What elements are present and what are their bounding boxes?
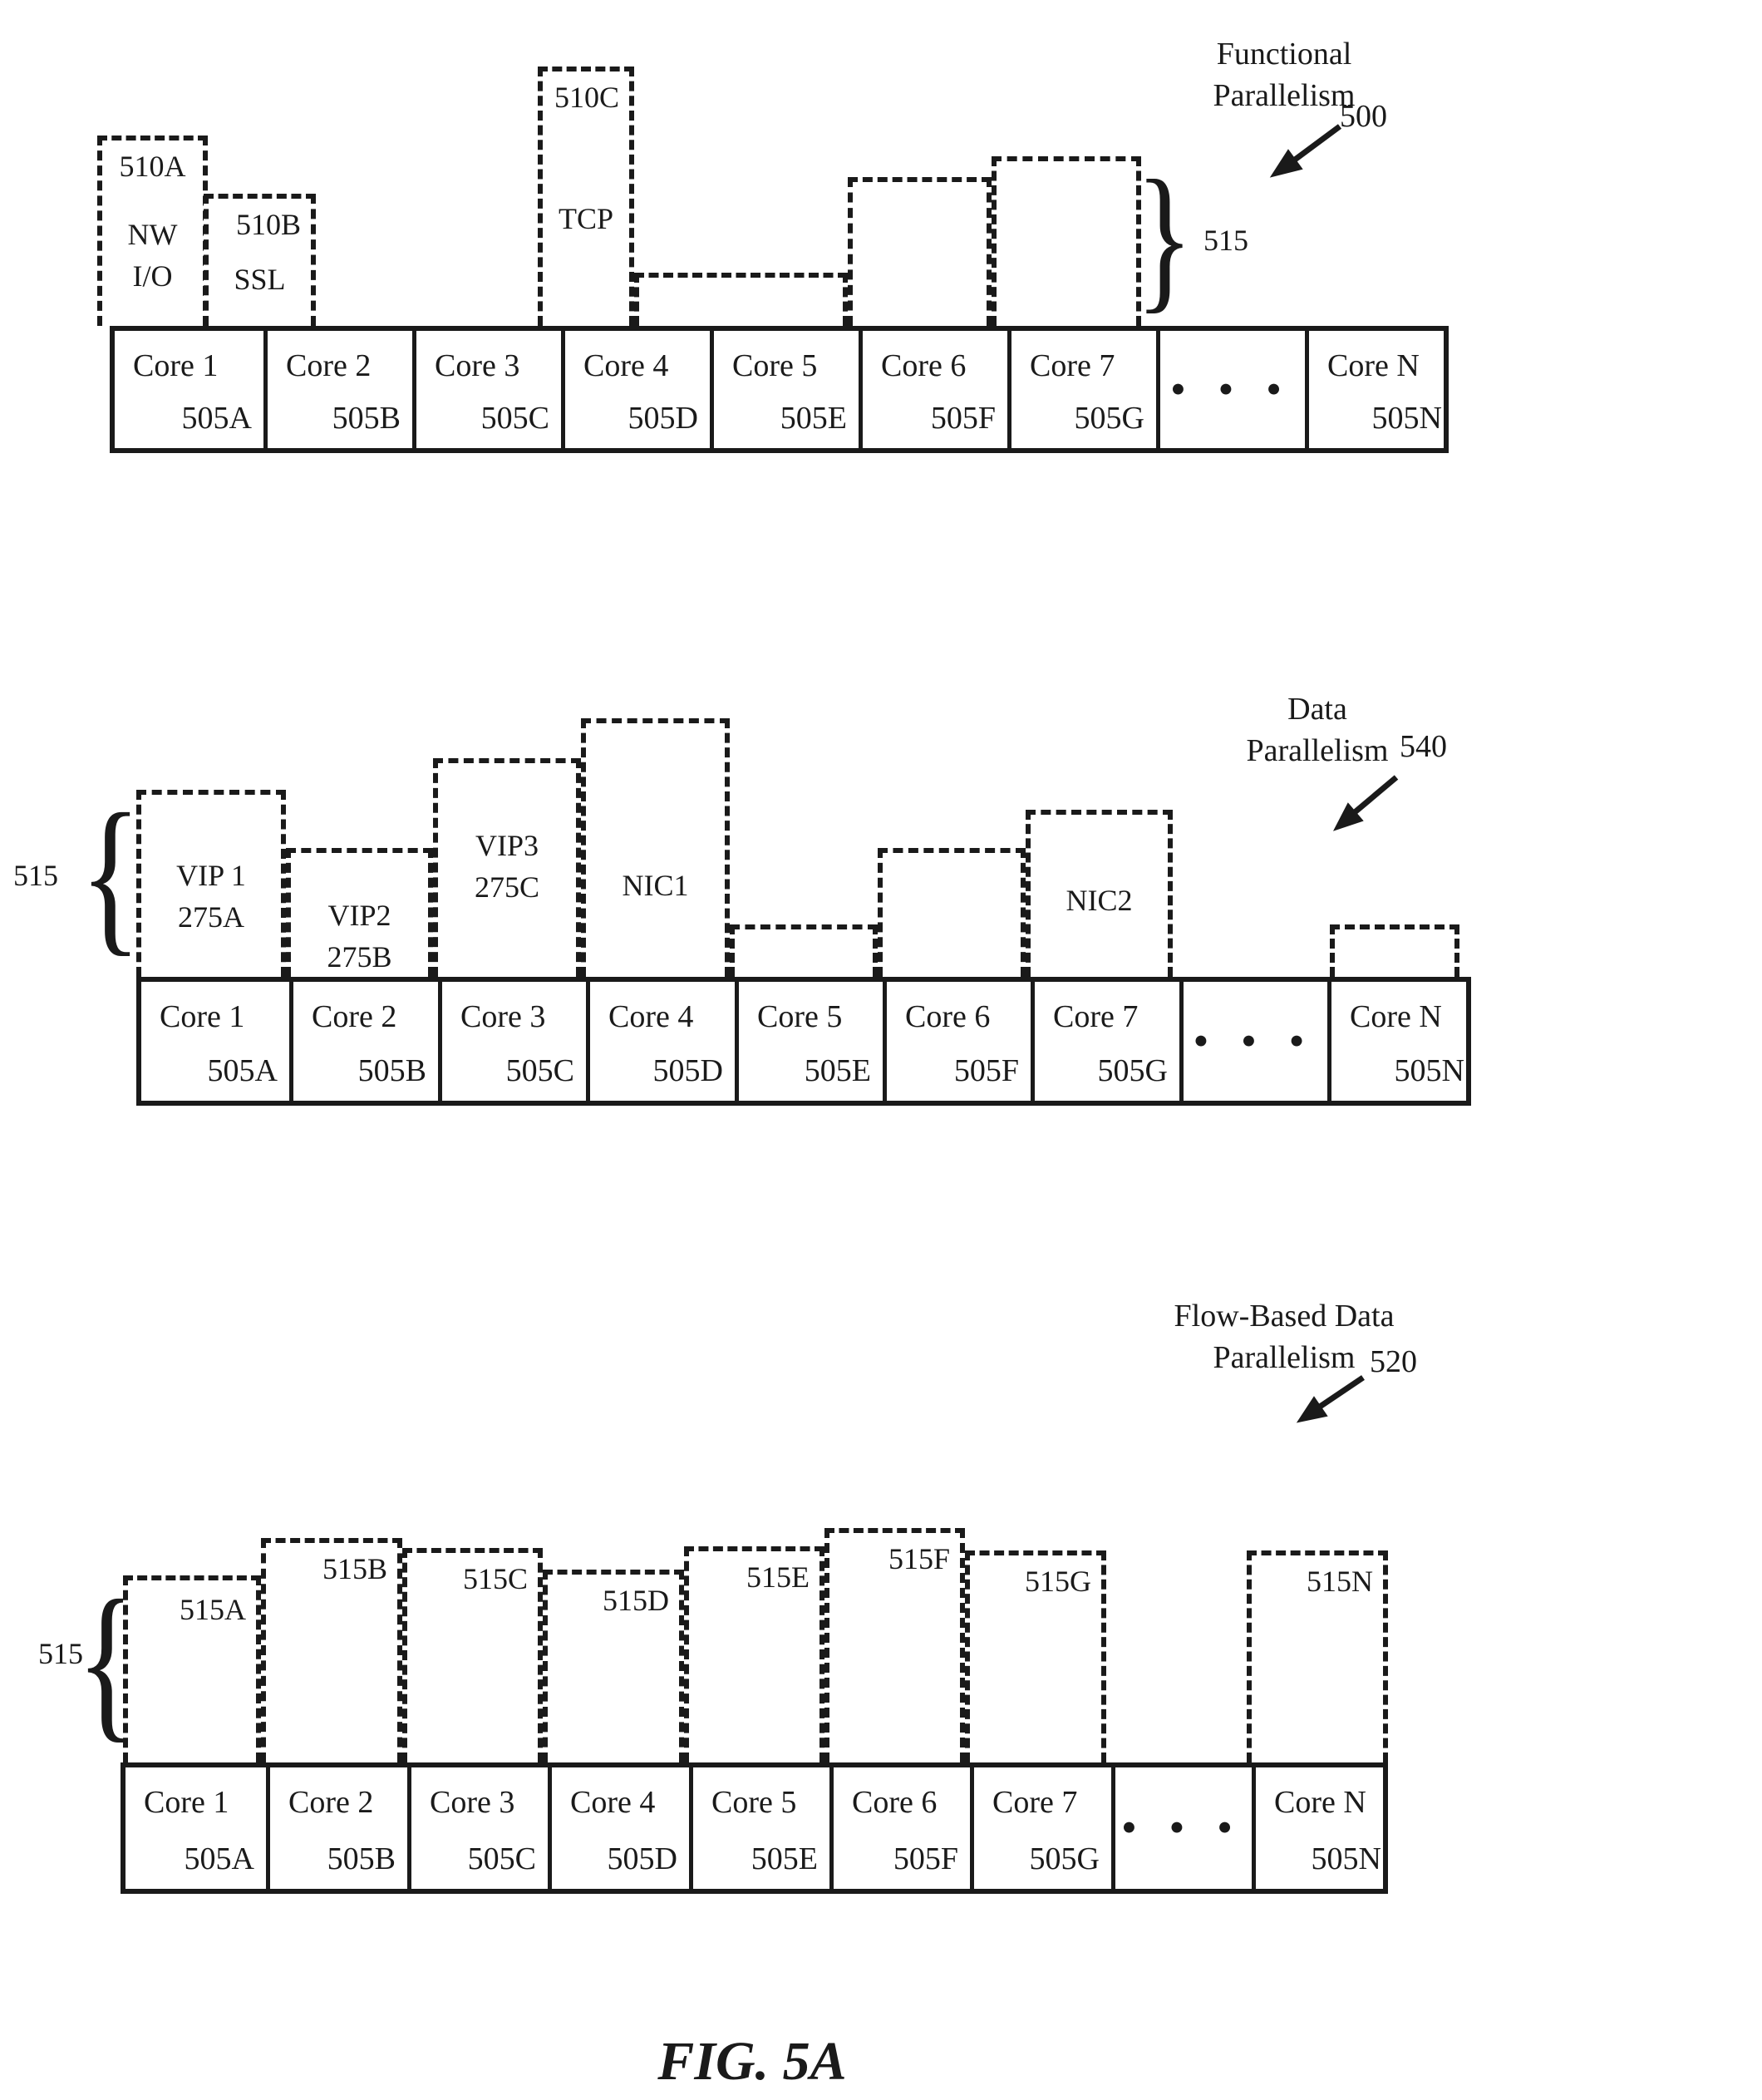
ref-arrow-500 xyxy=(1272,126,1340,176)
dashed-box-515a: 515A xyxy=(123,1575,261,1762)
box-label: 515F xyxy=(888,1541,950,1576)
core-cell: Core 5 505E xyxy=(710,331,859,448)
box-text: SSL xyxy=(209,259,311,300)
core-cell: Core 2 505B xyxy=(266,1767,407,1889)
title-line: Functional xyxy=(1180,33,1388,75)
core-cell: Core 5 505E xyxy=(689,1767,829,1889)
core-cell: Core N 505N xyxy=(1305,331,1454,448)
ref-520: 520 xyxy=(1370,1343,1417,1380)
box-label: 515E xyxy=(746,1560,810,1595)
ellipsis-cell: ● ● ● xyxy=(1179,982,1327,1101)
dashed-box-nic1: NIC1 xyxy=(581,718,730,977)
dashed-box-510c: 510C TCP xyxy=(538,67,634,326)
core-cell: Core 6 505F xyxy=(859,331,1007,448)
core-cell: Core 1 505A xyxy=(141,982,289,1101)
box-text: NIC1 xyxy=(586,865,725,906)
core-cell: Core N 505N xyxy=(1327,982,1476,1101)
core-row-functional: Core 1 505A Core 2 505B Core 3 505C Core… xyxy=(110,326,1449,453)
dashed-box-515b: 515B xyxy=(261,1538,402,1762)
dashed-box-510a: 510A NW I/O xyxy=(97,136,208,326)
box-text: NW I/O xyxy=(102,214,203,297)
dashed-box-510b: 510B SSL xyxy=(204,194,316,326)
ref-arrow-520 xyxy=(1298,1378,1363,1422)
dashed-box-515e: 515E xyxy=(684,1546,824,1762)
dashed-box-vip1: VIP 1 275A xyxy=(136,790,286,977)
dashed-box-515g: 515G xyxy=(965,1550,1106,1762)
brace-label: 515 xyxy=(13,858,58,893)
box-text: NIC2 xyxy=(1031,880,1168,921)
box-label: 510A xyxy=(102,149,203,184)
flow-based-title: Flow-Based Data Parallelism xyxy=(1164,1295,1405,1378)
dashed-box-515c: 515C xyxy=(402,1548,543,1762)
ref-500: 500 xyxy=(1340,98,1387,135)
brace-label: 515 xyxy=(38,1636,83,1671)
ellipsis-dots: ● ● ● xyxy=(1194,1026,1317,1054)
ref-540: 540 xyxy=(1400,728,1447,765)
title-line: Parallelism xyxy=(1164,1337,1405,1378)
core-cell: Core 7 505G xyxy=(1031,982,1179,1101)
core-cell: Core 3 505C xyxy=(412,331,561,448)
patent-figure-5a: Functional Parallelism 500 510A NW I/O 5… xyxy=(0,0,1762,2100)
box-text: TCP xyxy=(543,198,629,239)
data-parallelism-title: Data Parallelism xyxy=(1222,688,1413,771)
core-cell: Core 2 505B xyxy=(263,331,412,448)
box-label: 515A xyxy=(180,1592,246,1627)
dashed-box-core5-load2 xyxy=(730,924,878,977)
ref-arrow-540 xyxy=(1335,777,1396,830)
dashed-box-core6-load2 xyxy=(878,848,1026,977)
box-label: 515N xyxy=(1307,1564,1373,1599)
dashed-box-nic2: NIC2 xyxy=(1026,810,1173,977)
box-text: VIP2 275B xyxy=(291,895,428,978)
dashed-box-vip3: VIP3 275C xyxy=(433,758,581,977)
dashed-box-515n: 515N xyxy=(1247,1550,1388,1762)
core-cell: Core 6 505F xyxy=(883,982,1031,1101)
brace-label: 515 xyxy=(1203,223,1248,258)
dashed-box-core6-load xyxy=(848,177,992,326)
box-label: 515D xyxy=(603,1583,669,1618)
title-line: Parallelism xyxy=(1222,730,1413,771)
core-cell: Core 7 505G xyxy=(970,1767,1111,1889)
ellipsis-cell: ● ● ● xyxy=(1156,331,1305,448)
ellipsis-dots: ● ● ● xyxy=(1170,374,1294,402)
core-cell: Core 4 505D xyxy=(548,1767,689,1889)
box-label: 515C xyxy=(463,1561,528,1596)
dashed-box-core5-load xyxy=(634,273,848,326)
brace-515-right: } xyxy=(1129,146,1200,329)
box-label: 510C xyxy=(554,80,619,115)
figure-caption: FIG. 5A xyxy=(628,2030,877,2093)
dashed-box-515f: 515F xyxy=(824,1528,965,1762)
core-cell: Core 3 505C xyxy=(438,982,586,1101)
core-cell: Core 6 505F xyxy=(829,1767,970,1889)
core-cell: Core 4 505D xyxy=(586,982,735,1101)
box-text: VIP3 275C xyxy=(438,825,576,908)
core-cell: Core 3 505C xyxy=(407,1767,548,1889)
title-line: Flow-Based Data xyxy=(1164,1295,1405,1337)
ellipsis-dots: ● ● ● xyxy=(1121,1812,1245,1841)
core-cell: Core 1 505A xyxy=(115,331,263,448)
box-label: 515B xyxy=(322,1551,387,1586)
core-row-flow: Core 1 505A Core 2 505B Core 3 505C Core… xyxy=(121,1762,1388,1894)
core-row-data: Core 1 505A Core 2 505B Core 3 505C Core… xyxy=(136,977,1471,1106)
core-cell: Core 4 505D xyxy=(561,331,710,448)
box-label: 510B xyxy=(236,207,301,242)
dashed-box-core7-load xyxy=(992,156,1141,326)
dashed-box-coreN-load2 xyxy=(1330,924,1459,977)
box-label: 515G xyxy=(1025,1564,1091,1599)
core-cell: Core N 505N xyxy=(1252,1767,1393,1889)
core-cell: Core 1 505A xyxy=(126,1767,266,1889)
core-cell: Core 2 505B xyxy=(289,982,438,1101)
dashed-box-515d: 515D xyxy=(543,1570,684,1762)
ellipsis-cell: ● ● ● xyxy=(1111,1767,1252,1889)
box-text: VIP 1 275A xyxy=(141,855,281,938)
core-cell: Core 7 505G xyxy=(1007,331,1156,448)
core-cell: Core 5 505E xyxy=(735,982,883,1101)
dashed-box-vip2: VIP2 275B xyxy=(286,848,433,977)
title-line: Data xyxy=(1222,688,1413,730)
